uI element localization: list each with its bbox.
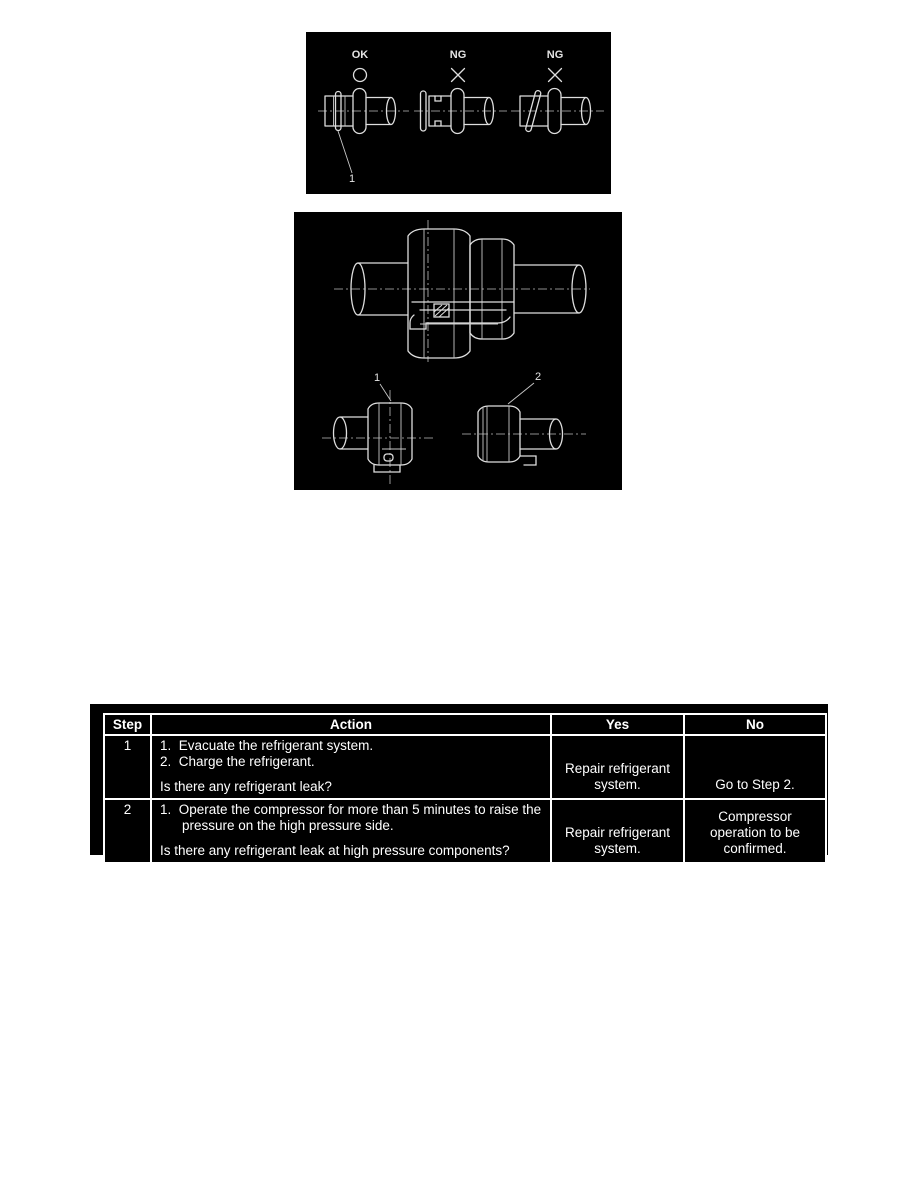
union-fitting-figure: 1 2	[294, 212, 622, 490]
no-cell: Compressor operation to be confirmed.	[684, 799, 826, 863]
callout-1: 1	[374, 372, 380, 384]
callout-1: 1	[349, 173, 355, 185]
ok-label: OK	[352, 49, 369, 61]
action-item: 2. Charge the refrigerant.	[160, 754, 544, 770]
step-header-cell: Step	[104, 714, 151, 735]
manual-page: OK NG NG 1	[0, 0, 918, 1188]
union-male-fitting-drawing	[462, 383, 586, 465]
step-cell: 2	[104, 799, 151, 863]
table-row: 1 1. Evacuate the refrigerant system. 2.…	[104, 735, 826, 799]
ng-label-1: NG	[450, 49, 467, 61]
action-cell: 1. Operate the compressor for more than …	[151, 799, 551, 863]
union-assembly-drawing	[334, 220, 590, 362]
table-row: 2 1. Operate the compressor for more tha…	[104, 799, 826, 863]
action-cell: 1. Evacuate the refrigerant system. 2. C…	[151, 735, 551, 799]
yes-cell: Repair refrigerant system.	[551, 735, 684, 799]
oring-check-figure: OK NG NG 1	[306, 32, 611, 194]
ok-mark-icon	[354, 69, 367, 82]
step-cell: 1	[104, 735, 151, 799]
ng-label-2: NG	[547, 49, 564, 61]
ng-mark-icon	[549, 69, 562, 82]
diagnostic-table: Step Action Yes No 1 1. Evacuate the ref…	[103, 713, 827, 864]
no-header-cell: No	[684, 714, 826, 735]
action-item: 1. Evacuate the refrigerant system.	[160, 738, 544, 754]
action-question: Is there any refrigerant leak?	[160, 779, 544, 795]
callout-2: 2	[535, 371, 541, 383]
union-nut-drawing	[322, 384, 434, 484]
union-fitting-drawing: 1 2	[294, 212, 622, 490]
yes-cell: Repair refrigerant system.	[551, 799, 684, 863]
fitting-ng1-drawing	[414, 89, 507, 134]
fitting-ok-drawing	[318, 89, 409, 174]
ng-mark-icon	[452, 69, 465, 82]
no-cell: Go to Step 2.	[684, 735, 826, 799]
action-question: Is there any refrigerant leak at high pr…	[160, 843, 544, 859]
diagnostic-table-block: Step Action Yes No 1 1. Evacuate the ref…	[90, 704, 828, 855]
action-item: 1. Operate the compressor for more than …	[160, 802, 544, 834]
action-header-cell: Action	[151, 714, 551, 735]
yes-header-cell: Yes	[551, 714, 684, 735]
table-header-row: Step Action Yes No	[104, 714, 826, 735]
oring-check-drawing: OK NG NG 1	[306, 32, 611, 194]
fitting-ng2-drawing	[511, 89, 604, 134]
